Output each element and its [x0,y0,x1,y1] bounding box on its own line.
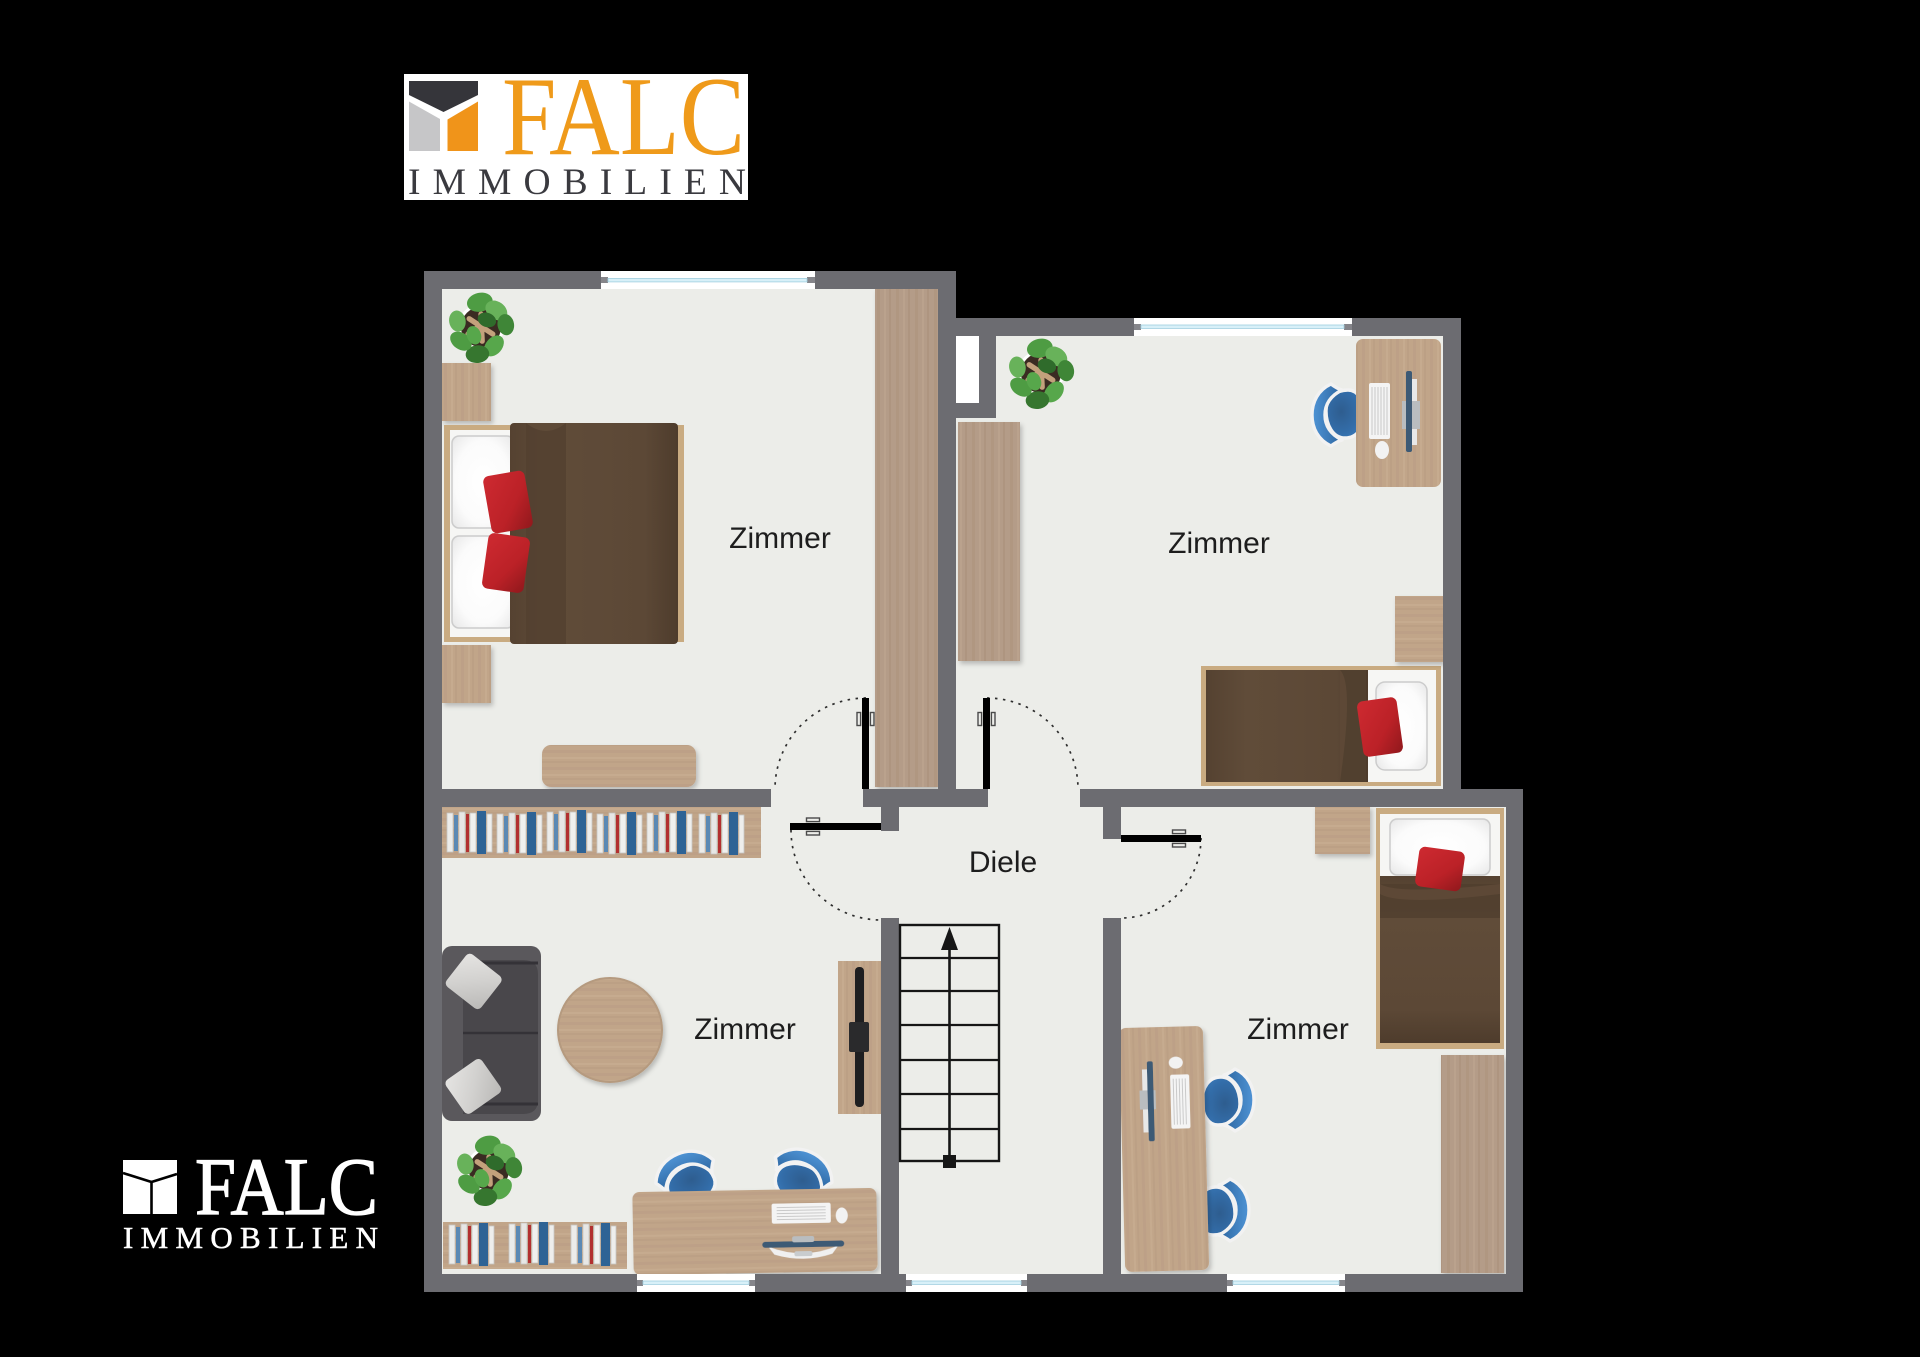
svg-text:Zimmer: Zimmer [694,1013,796,1046]
svg-text:FALC: FALC [502,55,745,179]
svg-text:IMMOBILIEN: IMMOBILIEN [123,1220,378,1255]
svg-text:Zimmer: Zimmer [1168,527,1270,560]
svg-text:Zimmer: Zimmer [1247,1013,1349,1046]
svg-text:FALC: FALC [195,1141,378,1232]
svg-text:IMMOBILIEN: IMMOBILIEN [408,162,746,203]
svg-text:Diele: Diele [969,846,1037,879]
svg-text:Zimmer: Zimmer [729,522,831,555]
